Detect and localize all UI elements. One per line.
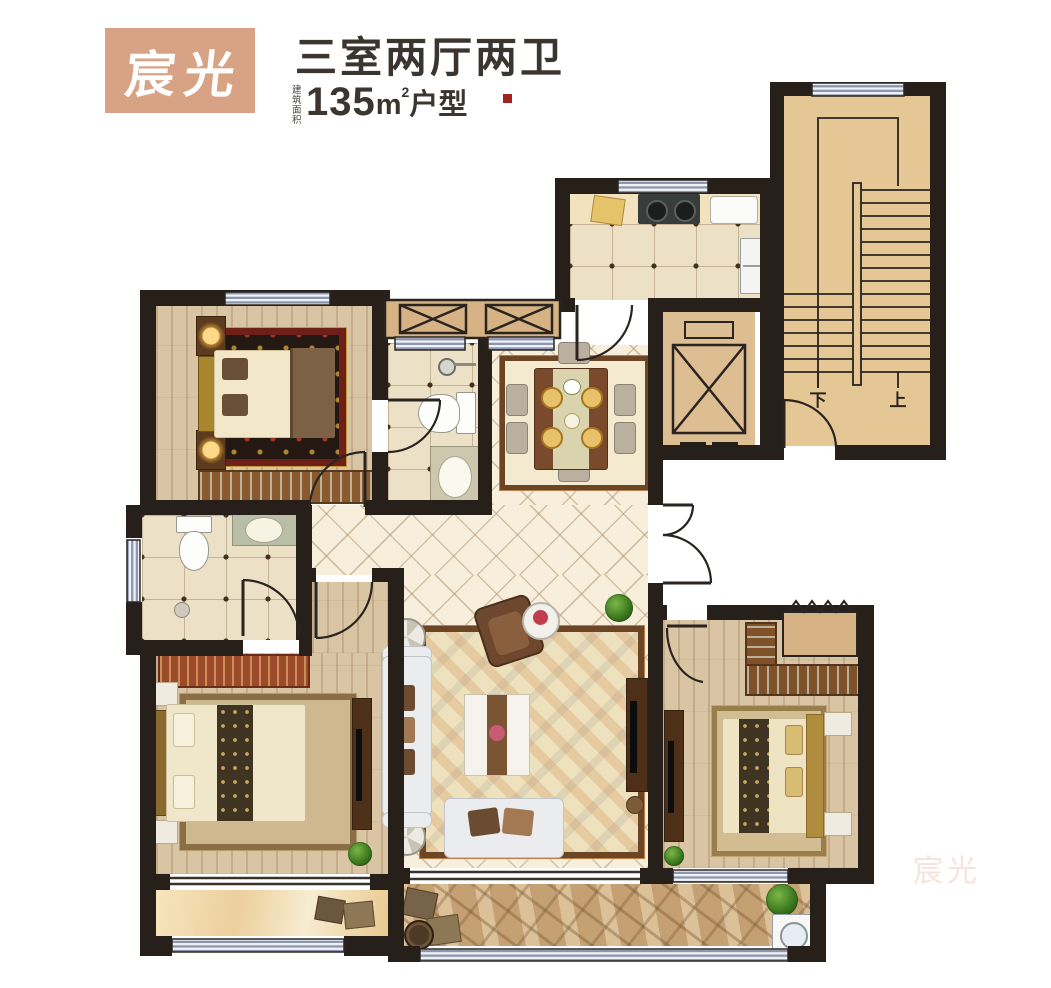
pillow: [391, 685, 415, 711]
pillow: [785, 725, 803, 755]
watermark: 宸光: [913, 846, 981, 890]
wall-segment: [126, 505, 142, 538]
wall-segment: [648, 620, 663, 868]
sofa-three-seat: [382, 656, 432, 816]
bed-headboard: [148, 710, 168, 816]
dining-chair: [558, 342, 590, 364]
potted-plant: [766, 884, 798, 916]
wall-segment: [648, 298, 663, 460]
tv-console: [626, 678, 648, 792]
wall-segment: [770, 82, 784, 460]
toilet-bowl: [418, 394, 460, 433]
window: [172, 939, 344, 952]
dining-chair: [506, 384, 528, 416]
wall-segment: [344, 936, 404, 956]
wall-segment: [648, 583, 663, 620]
stairwell-floor: [784, 96, 930, 446]
plate: [541, 427, 563, 449]
pillow: [391, 717, 415, 743]
wall-segment: [648, 298, 776, 312]
wall-segment: [930, 82, 946, 460]
wall-segment: [370, 874, 404, 890]
flowers: [489, 725, 505, 741]
shower-arm: [454, 363, 476, 366]
floor-drain: [174, 602, 190, 618]
bed-mattress: [722, 718, 808, 834]
wall-segment: [140, 880, 156, 938]
nightstand: [824, 812, 852, 836]
page-title: 三室两厅两卫: [295, 24, 565, 85]
area-info: 建筑面积 135 m 2 户型: [292, 82, 512, 126]
bed-runner: [217, 705, 253, 821]
tv-console: [352, 698, 372, 830]
sofa-loveseat: [444, 798, 564, 858]
ac-platform-band: [385, 300, 560, 338]
bed-mattress: [166, 704, 306, 822]
tv-screen: [630, 701, 637, 773]
pillow: [173, 713, 195, 747]
elevator-shaft-floor: [663, 312, 755, 445]
area-value: 135: [306, 82, 376, 122]
wall-segment: [140, 936, 172, 956]
burner: [674, 200, 696, 222]
potted-plant: [605, 594, 633, 622]
wall-segment: [140, 290, 390, 306]
window: [225, 292, 330, 305]
bed-runner: [739, 719, 769, 833]
wall-segment: [478, 336, 492, 515]
master-entry-nook-floor: [312, 582, 388, 653]
wall-segment: [835, 445, 946, 460]
plate: [581, 387, 603, 409]
washing-machine: [772, 914, 814, 956]
area-suffix: 户型: [409, 91, 467, 120]
brand-badge-text: 宸光: [122, 35, 248, 107]
round-pot-table: [404, 920, 434, 950]
wardrobe: [198, 470, 388, 504]
wall-segment: [555, 298, 575, 312]
wall-segment: [372, 290, 388, 400]
window: [673, 870, 788, 882]
nightstand: [148, 682, 178, 706]
area-unit: m: [376, 91, 402, 120]
ac-zigzag: [788, 601, 852, 612]
plate: [581, 427, 603, 449]
area-label: 建筑面积: [292, 86, 303, 126]
tv-screen: [356, 729, 362, 801]
washer-drum: [780, 922, 808, 950]
balcony-floor: [404, 884, 810, 946]
center-dish: [564, 413, 580, 429]
balcony-sliding-door: [410, 872, 640, 879]
wall-segment: [640, 868, 673, 884]
wall-segment: [555, 178, 776, 194]
wall-segment: [760, 310, 776, 460]
wardrobe: [745, 622, 777, 670]
vanity-counter: [232, 512, 298, 546]
bay-window-opening: [170, 878, 370, 884]
dining-chair: [614, 384, 636, 416]
ac-box: [486, 305, 552, 333]
refrigerator: [740, 238, 766, 294]
wall-segment: [858, 605, 874, 868]
toilet-bowl: [179, 531, 209, 571]
plate: [541, 387, 563, 409]
wall-segment: [788, 868, 874, 884]
pillow: [173, 775, 195, 809]
bay-cushion: [343, 901, 376, 930]
pillow: [391, 749, 415, 775]
kitchen-sink: [710, 196, 758, 224]
ac-box: [400, 305, 466, 333]
flower-side-table: [522, 602, 560, 640]
door-entry-main: [663, 505, 711, 583]
wall-segment: [555, 178, 570, 310]
corridor-floor: [302, 505, 648, 575]
bay-cushion: [314, 896, 346, 924]
wall-segment: [388, 884, 404, 946]
brand-badge: 宸光: [105, 28, 255, 113]
window: [812, 83, 904, 96]
pillow: [222, 358, 248, 380]
nightstand: [824, 712, 852, 736]
fridge-divider: [743, 265, 761, 267]
vanity-sink: [438, 456, 472, 498]
gas-stove: [638, 194, 700, 224]
shower-head: [438, 358, 456, 376]
wall-segment: [126, 602, 142, 655]
flowers: [533, 610, 548, 625]
pillow: [785, 767, 803, 797]
sofa-armrest: [382, 812, 432, 828]
coffee-table: [464, 694, 530, 776]
cutting-board: [590, 195, 625, 226]
dining-chair: [506, 422, 528, 454]
potted-plant: [664, 846, 684, 866]
wall-segment: [648, 460, 663, 505]
potted-plant: [348, 842, 372, 866]
wall-segment: [388, 868, 410, 884]
window: [127, 540, 140, 602]
kitchen-floor: [570, 224, 760, 300]
pillow: [222, 394, 248, 416]
wall-segment: [770, 82, 946, 96]
wall-segment: [707, 605, 874, 620]
nightstand: [148, 820, 178, 844]
bed-blanket: [290, 348, 335, 438]
tv-console: [664, 710, 684, 842]
stool: [626, 796, 644, 814]
vanity-sink: [245, 517, 283, 543]
tv-screen: [668, 741, 674, 813]
wardrobe: [745, 664, 861, 696]
wall-segment: [140, 874, 170, 890]
dining-chair: [614, 422, 636, 454]
wall-segment: [140, 290, 156, 515]
floor-plan-page: 宸光 三室两厅两卫 建筑面积 135 m 2 户型 宸光: [0, 0, 1051, 988]
wall-segment: [648, 605, 667, 620]
pillow: [502, 808, 535, 837]
bed-headboard: [806, 714, 824, 838]
dining-table: [534, 368, 608, 470]
salad-dish: [563, 379, 581, 395]
area-exponent: 2: [402, 84, 410, 100]
burner: [646, 200, 668, 222]
window: [420, 949, 788, 961]
window: [618, 180, 708, 193]
wall-segment: [648, 445, 770, 460]
red-square-accent: [503, 94, 512, 103]
dresser: [158, 654, 310, 688]
pillow: [467, 807, 500, 837]
